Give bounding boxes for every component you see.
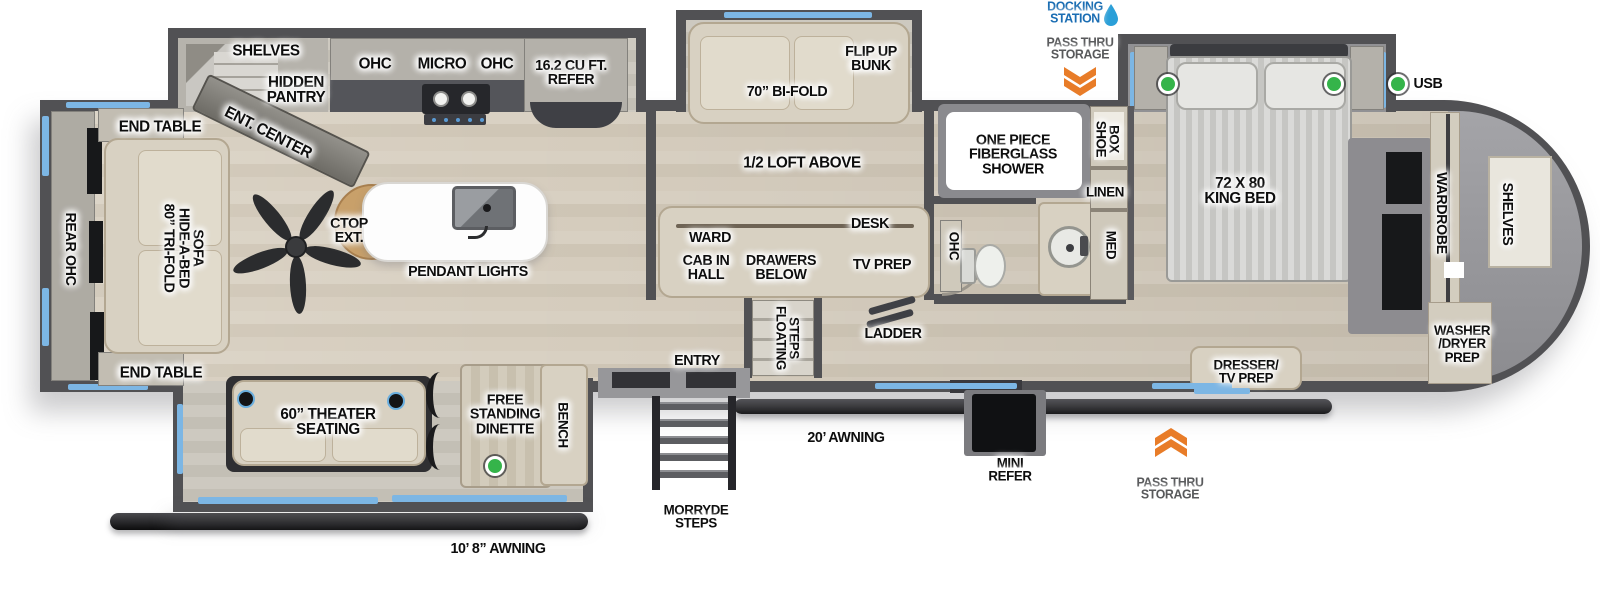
- drawers-below-label: DRAWERS BELOW: [746, 254, 816, 283]
- dresser-tv-prep-label: DRESSER/ TV PREP: [1214, 359, 1279, 386]
- shower-label: ONE PIECE FIBERGLASS SHOWER: [969, 134, 1057, 177]
- ohc-kitchen-left-label: OHC: [359, 56, 392, 71]
- washer-dryer-prep-label: WASHER /DRYER PREP: [1434, 324, 1490, 364]
- med-label: MED: [1104, 231, 1117, 259]
- cab-in-hall-label: CAB IN HALL: [683, 254, 730, 283]
- ward-label: WARD: [689, 231, 731, 245]
- theater-seating-label: 60” THEATER SEATING: [280, 407, 375, 437]
- wardrobe-label: WARDROBE: [1434, 172, 1448, 254]
- shelves-front-label: SHELVES: [1500, 183, 1514, 246]
- docking-station-label: DOCKING STATION: [1047, 1, 1103, 26]
- refer-label: 16.2 CU FT. REFER: [535, 59, 607, 88]
- desk-label: DESK: [851, 217, 889, 231]
- awning-10-8-label: 10’ 8” AWNING: [450, 542, 545, 556]
- pendant-lights-label: PENDANT LIGHTS: [408, 265, 528, 279]
- awning-20-label: 20’ AWNING: [807, 431, 884, 445]
- mini-refer-label: MINI REFER: [988, 457, 1031, 484]
- ohc-kitchen-right-label: OHC: [481, 56, 514, 71]
- hidden-pantry-label: HIDDEN PANTRY: [267, 75, 326, 105]
- king-bed-label: 72 X 80 KING BED: [1204, 176, 1275, 206]
- linen-label: LINEN: [1086, 185, 1124, 198]
- pass-thru-storage-top-label: PASS THRU STORAGE: [1046, 37, 1113, 62]
- entry-label: ENTRY: [674, 354, 720, 368]
- ladder-label: LADDER: [864, 327, 921, 341]
- bi-fold-label: 70” BI-FOLD: [747, 85, 828, 99]
- pass-thru-storage-bottom-label: PASS THRU STORAGE: [1136, 477, 1203, 502]
- floating-steps-label: STEPS FLOATING: [774, 306, 801, 370]
- ctop-ext-label: CTOP EXT.: [330, 217, 368, 246]
- hide-a-bed-sofa-label: SOFA HIDE-A-BED 80” TRI-FOLD: [162, 204, 205, 293]
- labels-layer: REAR OHCEND TABLESOFA HIDE-A-BED 80” TRI…: [0, 0, 1600, 607]
- end-table-bottom-label: END TABLE: [120, 365, 202, 380]
- usb-legend-label: USB: [1414, 77, 1443, 91]
- bench-label: BENCH: [556, 402, 569, 447]
- tv-prep-bunk-label: TV PREP: [853, 258, 911, 272]
- rear-ohc-label: REAR OHC: [63, 213, 77, 286]
- ent-center-label: ENT. CENTER: [222, 105, 314, 162]
- shelves-kitchen-label: SHELVES: [232, 43, 299, 58]
- shoe-box-label: BOX SHOE: [1094, 121, 1121, 157]
- ohc-bath-label: OHC: [947, 232, 960, 260]
- free-standing-dinette-label: FREE STANDING DINETTE: [470, 394, 540, 437]
- micro-label: MICRO: [418, 56, 467, 71]
- floorplan-canvas: REAR OHCEND TABLESOFA HIDE-A-BED 80” TRI…: [0, 0, 1600, 607]
- flip-up-bunk-label: FLIP UP BUNK: [845, 45, 897, 74]
- half-loft-label: 1/2 LOFT ABOVE: [743, 155, 860, 170]
- morryde-steps-label: MORRYDE STEPS: [664, 504, 729, 531]
- end-table-top-label: END TABLE: [119, 119, 201, 134]
